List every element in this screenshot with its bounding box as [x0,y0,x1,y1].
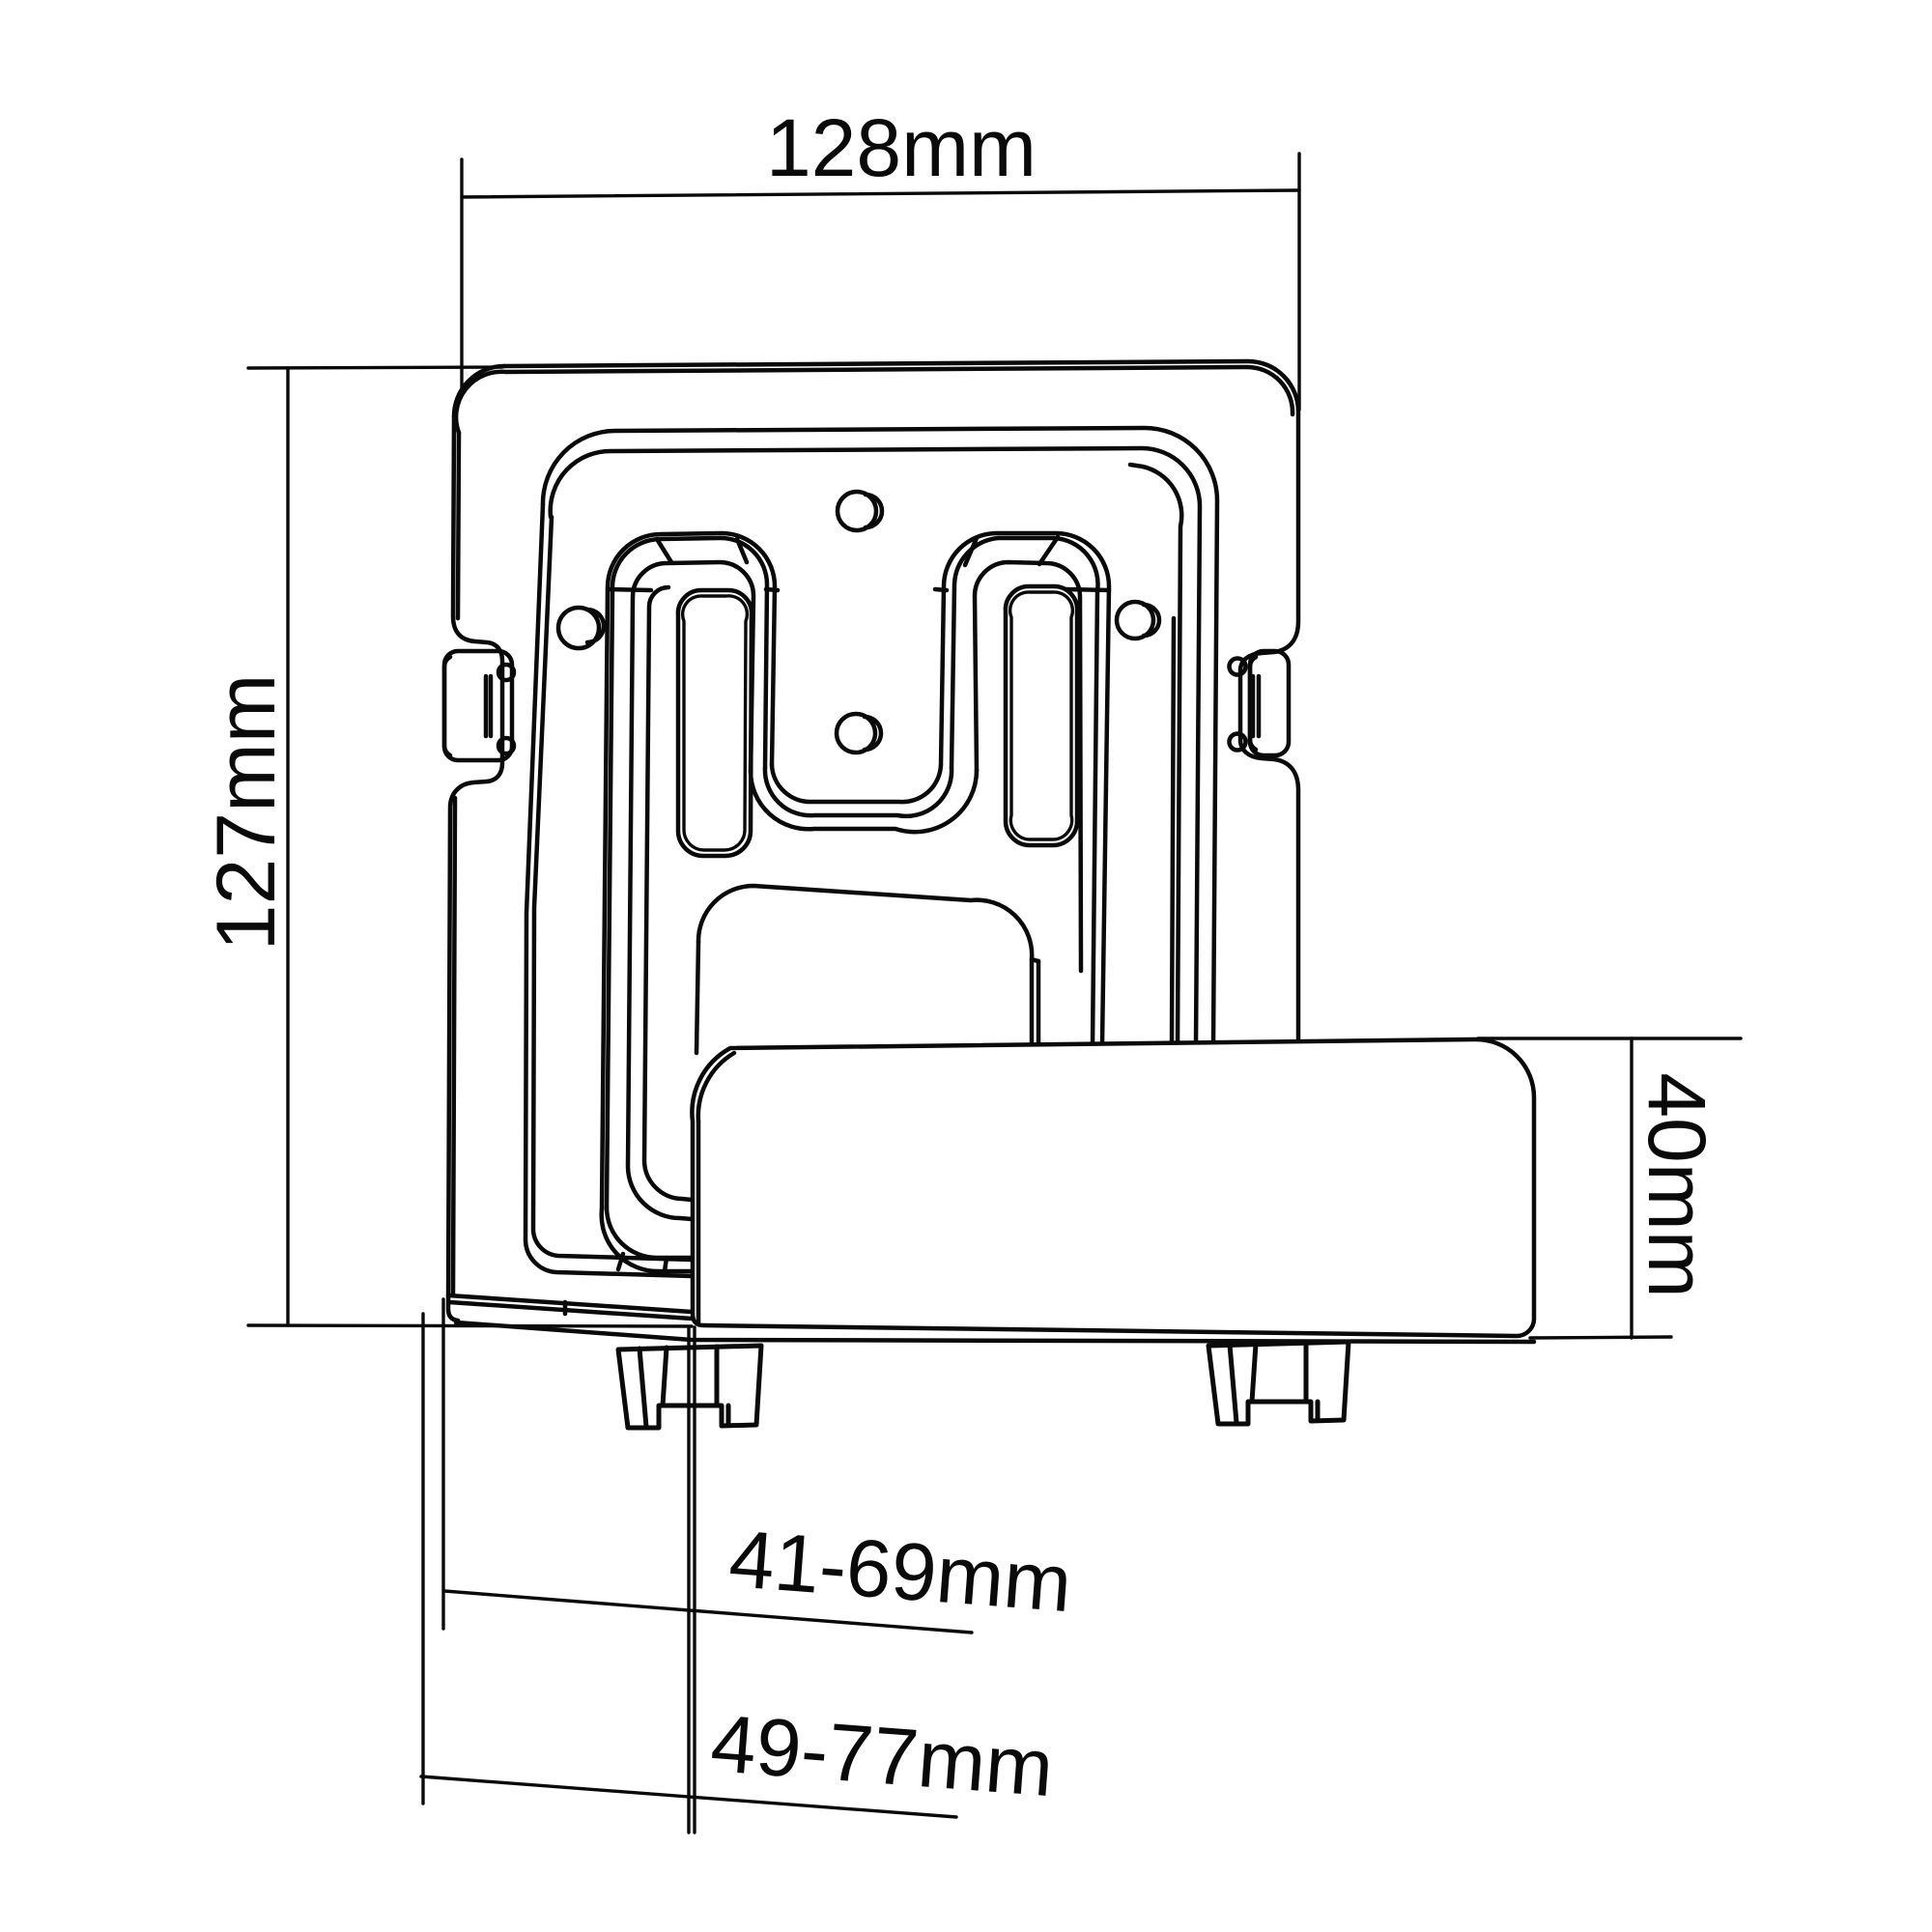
svg-text:127mm: 127mm [200,674,293,952]
svg-text:128mm: 128mm [766,102,1037,193]
svg-text:40mm: 40mm [1632,1072,1722,1297]
